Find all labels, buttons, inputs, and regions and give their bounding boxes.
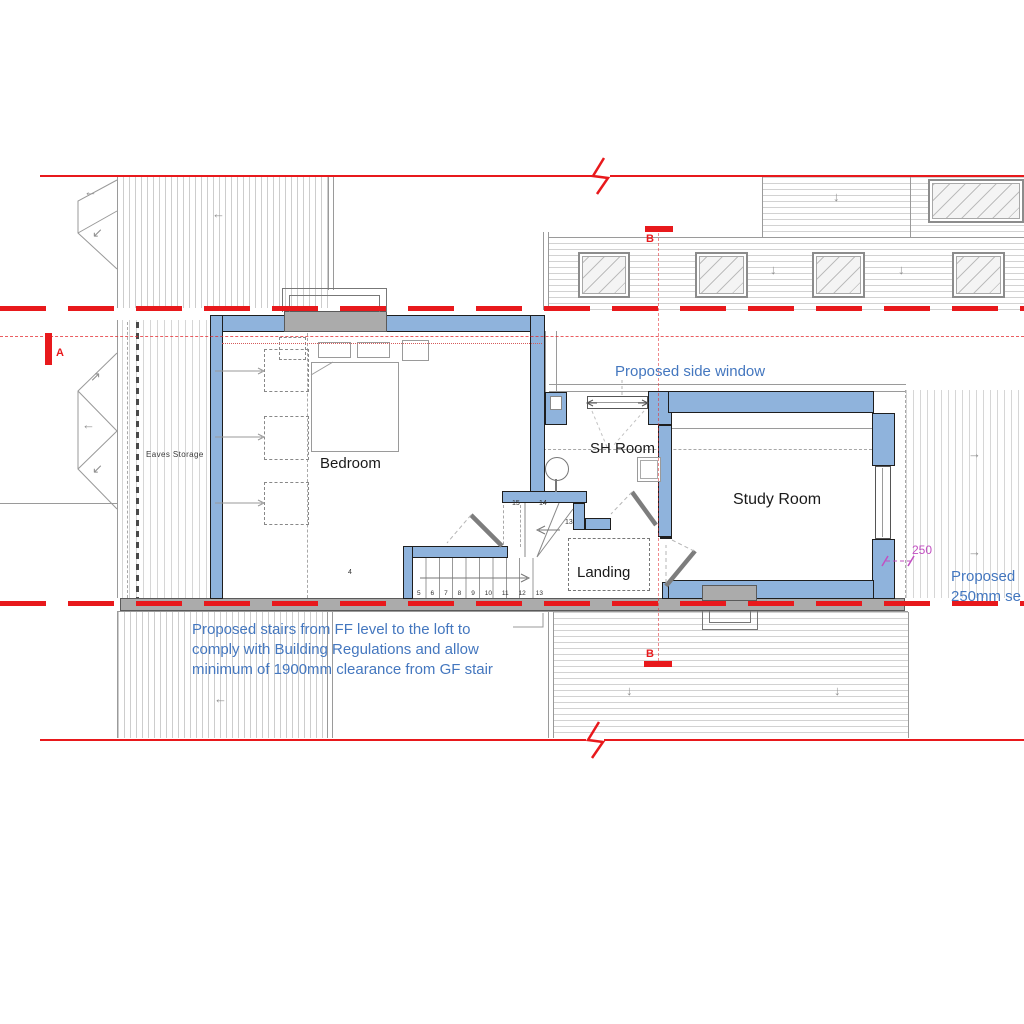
rooflight-3 [812,252,865,298]
pillow [318,342,351,358]
bedroom-top-wall [386,315,545,332]
slope-arrow-icon: ← [84,185,97,198]
winder-jog-wall [585,518,611,530]
stair-number-14: 14 [539,500,547,507]
eaves-boundary-dashed [136,322,139,598]
slope-arrow-icon: ← [214,692,227,705]
room-label-sh-room: SH Room [590,440,655,457]
pillow [357,342,390,358]
eaves-line-left [0,503,117,504]
slope-arrow-icon: ↗ [90,370,101,383]
section-line-lower [0,601,1024,606]
slope-arrow-icon: → [968,447,981,460]
stair-number: 12 [519,590,526,598]
section-marker-a-label: A [56,347,64,359]
bedroom-left-wall [210,315,223,599]
roof-edge [117,320,118,598]
room-label-landing: Landing [577,564,630,581]
winder-jog-wall [573,503,585,530]
section-marker-a-bar [45,333,52,365]
stair-run-numbers: 5 6 7 8 9 10 11 12 13 [417,590,543,598]
rooflight-2 [695,252,748,298]
site-outline-bottom [40,739,1024,741]
dimension-250: 250 [912,543,932,557]
site-outline-top [40,175,1024,177]
study-top-wall [668,391,874,413]
section-marker-b-top-bar [645,226,673,232]
stair-number-15: 15 [512,500,520,507]
annotation-line: minimum of 1900mm clearance from GF stai… [192,660,493,680]
floor-plan: 5 6 7 8 9 10 11 12 13 15 14 13 4 A B B [0,0,1024,1024]
ridge-line [553,612,554,738]
section-marker-b-bottom-label: B [646,648,654,660]
section-marker-b-bottom-bar [644,661,672,667]
study-right-wall [872,539,895,599]
wall-skin-line [545,331,546,392]
eaves-dashed-line [127,322,128,598]
study-bottom-wall [668,580,874,599]
stair-number: 8 [458,590,462,598]
eaves-dashed-right [905,390,906,598]
jamb-notch [550,396,562,410]
wall-skin-line [556,331,557,392]
annotation-side-window: Proposed side window [615,362,765,382]
stair-number: 6 [431,590,435,598]
stair-number: 7 [444,590,448,598]
band-top-line [117,611,908,612]
slope-arrow-icon: ↓ [626,684,633,697]
proposed-side-window-line [589,402,646,403]
wardrobe [264,416,309,460]
roof-edge [762,177,763,237]
existing-window-below-inner [709,611,751,623]
study-window [875,466,891,539]
roof-edge [117,612,118,738]
roof-edge [910,177,911,237]
slope-arrow-icon: ↙ [92,226,103,239]
room-label-study-room: Study Room [733,491,821,509]
slope-arrow-icon: ← [212,207,225,220]
study-right-wall [872,413,895,466]
wc-pan [545,457,569,481]
section-line-a [0,336,1024,337]
bedroom-step-number: 4 [348,569,352,576]
ridge-line [548,612,549,738]
basin-inner [640,460,658,479]
slope-arrow-icon: ↓ [898,263,905,276]
rooflight-4 [952,252,1005,298]
shroom-left-wall [530,315,545,493]
wardrobe-small [279,337,306,360]
roof-edge [543,232,544,310]
slope-arrow-icon: ↙ [92,462,103,475]
annotation-line: comply with Building Regulations and all… [192,640,493,660]
stair-number: 9 [471,590,475,598]
annotation-line: Proposed stairs from FF level to the lof… [192,620,493,640]
annotation-right-note: Proposed 250mm se [951,567,1024,607]
stair-wall [403,546,413,599]
wall-red-dotted [222,343,542,344]
rooflight-large [928,179,1024,223]
stair-wall [403,546,508,558]
roof-edge [548,237,1024,238]
stair-dashed [520,505,521,547]
slope-arrow-icon: ← [82,418,95,431]
existing-wall-segment [702,585,757,601]
study-window-line [882,468,883,537]
stair-number: 11 [502,590,509,598]
slope-arrow-icon: ↓ [770,263,777,276]
bed [311,362,399,452]
wardrobe [264,482,309,525]
stair-number: 10 [485,590,492,598]
room-label-eaves-storage: Eaves Storage [146,450,204,459]
wall-skin-line [549,384,906,385]
slope-arrow-icon: → [968,545,981,558]
section-line-upper [0,306,1024,311]
annotation-stairs-note: Proposed stairs from FF level to the lof… [192,620,493,680]
roof-edge [548,232,549,310]
section-line-b [658,233,659,661]
study-inner-face [668,428,872,429]
ridge-line [328,177,329,290]
stair-number: 5 [417,590,421,598]
roof-hatch-bottom-right [554,612,908,738]
stair-number: 13 [536,590,543,598]
slope-arrow-icon: ↓ [834,684,841,697]
rooflight-1 [578,252,630,298]
roof-edge [117,177,118,308]
ridge-line [333,177,334,290]
annotation-line: 250mm se [951,587,1024,607]
annotation-line: Proposed [951,567,1024,587]
room-label-bedroom: Bedroom [320,455,381,472]
stair-number-13: 13 [565,519,573,526]
ceiling-height-dashed [533,449,872,450]
roof-edge [908,612,909,738]
chimney-breast [284,311,387,332]
section-marker-b-top-label: B [646,233,654,245]
slope-arrow-icon: ↓ [833,190,840,203]
